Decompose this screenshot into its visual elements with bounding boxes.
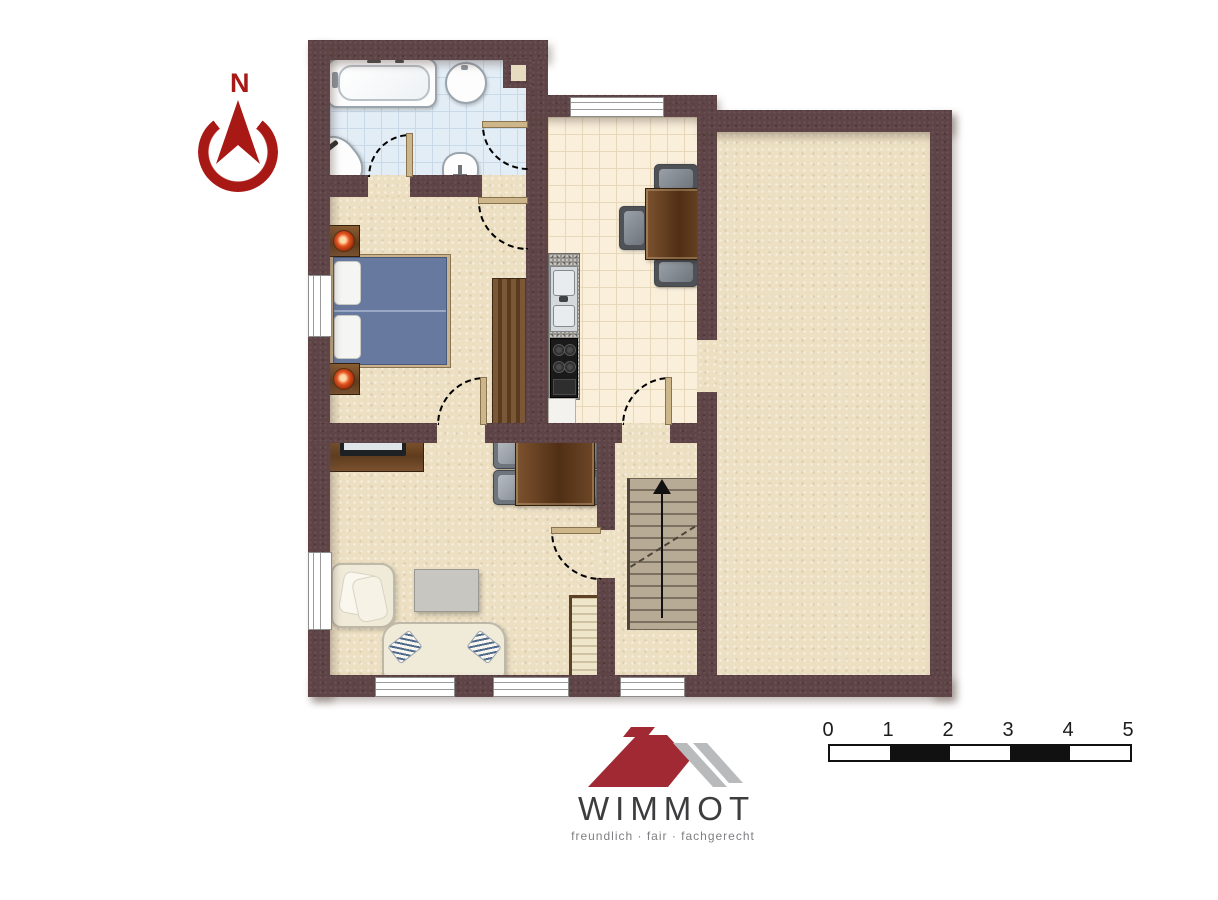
wall-right-outer	[930, 110, 952, 697]
opening-kitchen-hall-door	[622, 423, 670, 443]
bathtub	[327, 58, 437, 108]
north-label: N	[230, 68, 250, 99]
scale-bar-strip	[828, 744, 1132, 762]
kitchen-chair	[654, 257, 698, 287]
door-leaf-bathroom	[406, 133, 413, 177]
stairs-up-arrowhead-icon	[653, 479, 671, 494]
burner	[564, 361, 576, 373]
sofa-cushion	[387, 630, 423, 665]
shaft-pillar-inset	[511, 65, 526, 81]
window-kitchen-top	[570, 97, 664, 117]
logo-roof-icon	[585, 727, 745, 791]
washbasin	[445, 62, 487, 104]
opening-bedroom-living-door	[437, 423, 485, 443]
wardrobe	[492, 278, 530, 425]
washbasin-tap	[461, 65, 468, 70]
kitchen-cabinet	[548, 398, 576, 424]
scale-segment	[890, 746, 950, 760]
door-leaf-kitchen-hall	[665, 377, 672, 425]
north-arrow-icon	[212, 98, 264, 172]
stairs-up-arrow	[661, 490, 663, 618]
wall-bath-kitchen	[526, 60, 548, 252]
window-bottom-1	[375, 677, 455, 697]
scale-segment	[1070, 746, 1130, 760]
shaft-pillar	[503, 58, 532, 88]
pillow	[334, 315, 361, 359]
wall-large-room-top	[697, 110, 952, 132]
door-leaf-living-hall	[551, 527, 601, 534]
pillow	[334, 261, 361, 305]
window-bedroom-left	[308, 275, 332, 337]
bedside-lamp	[333, 230, 355, 252]
sofa-cushion	[466, 630, 502, 665]
door-leaf-bath-niche	[482, 121, 528, 128]
sofa	[382, 622, 506, 680]
large-room-floor	[717, 132, 930, 675]
opening-kitchen-large-room	[697, 340, 717, 392]
scale-tick-5: 5	[1122, 719, 1133, 742]
wall-counter	[526, 252, 548, 423]
bedside-lamp	[333, 368, 355, 390]
opening-bedroom-door	[482, 175, 526, 197]
scale-tick-3: 3	[1002, 719, 1013, 742]
door-leaf-bedroom	[478, 197, 528, 204]
bathtub-handle-2	[395, 60, 404, 63]
scale-tick-0: 0	[822, 719, 833, 742]
entrance-opening-bottom	[620, 677, 685, 697]
scale-segment	[1010, 746, 1070, 760]
opening-bathroom-door	[368, 175, 410, 197]
scale-tick-4: 4	[1062, 719, 1073, 742]
bed-duvet-split	[334, 310, 446, 312]
logo-tagline: freundlich · fair · fachgerecht	[568, 829, 758, 843]
bathtub-basin	[338, 65, 430, 101]
window-bottom-2	[493, 677, 569, 697]
scale-segment	[950, 746, 1010, 760]
kitchen-sink	[550, 266, 578, 332]
scale-tick-1: 1	[882, 719, 893, 742]
burner	[564, 344, 576, 356]
coffee-table	[414, 569, 479, 612]
door-leaf-bedroom-living	[480, 377, 487, 425]
bathtub-faucet	[332, 72, 338, 88]
sink-basin	[553, 270, 575, 296]
scale-tick-2: 2	[942, 719, 953, 742]
armchair-cushion	[351, 574, 389, 623]
oven-front	[553, 379, 576, 395]
wall-kitchen-large-room	[697, 95, 717, 697]
logo-name: WIMMOT	[578, 790, 748, 828]
floor-plan-page: N	[0, 0, 1218, 900]
bathtub-handle	[367, 60, 381, 63]
window-living-left	[308, 552, 332, 630]
sink-drainboard	[553, 305, 575, 327]
wall-bathroom-top	[308, 40, 548, 60]
stove	[550, 338, 578, 398]
tv-screen	[344, 443, 402, 450]
armchair	[331, 563, 395, 628]
sink-faucet	[559, 296, 568, 302]
staircase	[627, 478, 701, 630]
scale-segment	[830, 746, 890, 760]
